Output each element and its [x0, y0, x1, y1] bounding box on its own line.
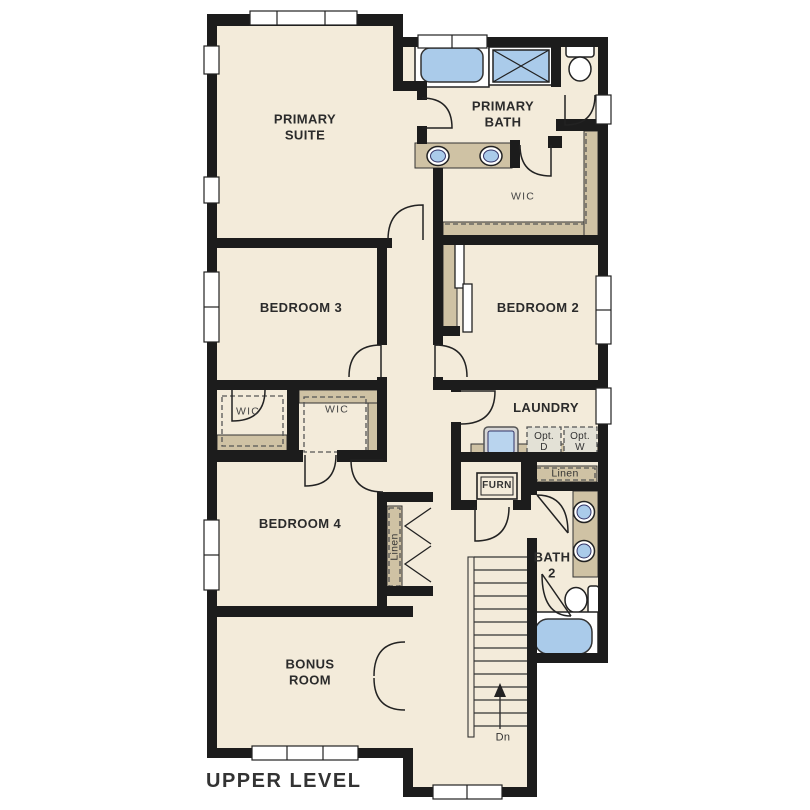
room-label-line: BATH	[534, 549, 571, 564]
wall-segment	[527, 653, 537, 797]
wall-segment	[598, 37, 608, 663]
wall-segment	[287, 390, 299, 452]
wall-segment	[433, 326, 460, 336]
window	[596, 388, 611, 424]
toilet-bowl	[569, 57, 591, 81]
label-line: Opt.	[534, 431, 554, 442]
label-linen-hall: Linen	[389, 533, 402, 560]
room-label-wic-bedroom4: WIC	[325, 404, 349, 417]
wall-segment	[433, 168, 443, 345]
window	[204, 177, 219, 203]
room-label-primary-suite: PRIMARYSUITE	[274, 111, 336, 142]
room-label-laundry: LAUNDRY	[513, 400, 579, 416]
floor-plan-drawing	[0, 0, 810, 810]
wall-segment	[527, 462, 537, 495]
wic3-shelf	[217, 435, 287, 452]
wall-segment	[527, 653, 608, 663]
room-label-line: PRIMARY	[472, 98, 534, 113]
primary-tub	[421, 48, 483, 82]
label-line: Opt.	[570, 431, 590, 442]
wall-segment	[207, 380, 387, 390]
room-label-line: ROOM	[289, 672, 331, 687]
sink-basin	[484, 150, 499, 162]
room-label-bonus: BONUSROOM	[286, 656, 335, 687]
room-label-line: 2	[548, 565, 556, 580]
floor	[408, 611, 532, 792]
sink-basin	[577, 544, 591, 558]
wall-segment	[537, 482, 598, 491]
sink-basin	[577, 505, 591, 519]
window	[252, 746, 358, 760]
wall-segment	[513, 500, 531, 510]
bath2-tub	[535, 619, 592, 654]
wall-segment	[510, 140, 520, 168]
plan-title: UPPER LEVEL	[206, 770, 361, 793]
wall-segment	[207, 450, 303, 462]
room-label-primary-bath: PRIMARYBATH	[472, 98, 534, 129]
wall-segment	[433, 235, 598, 245]
wall-segment	[548, 136, 562, 148]
wall-segment	[451, 500, 477, 510]
label-optional-dryer: Opt.D	[534, 431, 554, 453]
label-stairs-down: Dn	[496, 731, 511, 744]
room-label-bedroom4: BEDROOM 4	[259, 516, 341, 532]
wall-segment	[377, 492, 433, 502]
room-label-bath2: BATH2	[534, 549, 571, 580]
sink-basin	[431, 150, 446, 162]
label-line: W	[575, 442, 585, 453]
wall-segment	[393, 14, 403, 88]
wall-segment	[451, 452, 598, 462]
room-label-bedroom3: BEDROOM 3	[260, 300, 342, 316]
closet-bypass-door	[463, 284, 472, 332]
wall-segment	[207, 238, 392, 248]
room-label-line: SUITE	[285, 127, 325, 142]
room-label-primary-wic: WIC	[511, 191, 535, 204]
wall-segment	[451, 380, 461, 392]
wall-segment	[551, 37, 561, 87]
laundry-sink-basin	[488, 431, 514, 453]
floor-plan: PRIMARYSUITE PRIMARYBATH WIC BEDROOM 3 B…	[0, 0, 810, 810]
room-label-bedroom2: BEDROOM 2	[497, 300, 579, 316]
wall-segment	[377, 586, 433, 596]
closet-bypass-door	[455, 240, 464, 288]
room-label-line: BATH	[485, 114, 522, 129]
window	[596, 95, 611, 124]
wall-segment	[556, 119, 598, 131]
label-optional-washer: Opt.W	[570, 431, 590, 453]
room-label-wic-bedroom3: WIC	[236, 406, 260, 419]
toilet-tank	[588, 586, 599, 614]
window	[250, 11, 357, 25]
toilet-bowl	[565, 588, 587, 613]
window	[204, 46, 219, 74]
wall-segment	[377, 248, 387, 345]
wall-segment	[207, 606, 413, 617]
room-label-line: PRIMARY	[274, 111, 336, 126]
label-linen-bath2: Linen	[551, 468, 578, 481]
room-label-line: BONUS	[286, 656, 335, 671]
label-furnace: FURN	[482, 480, 512, 492]
label-line: D	[540, 442, 547, 453]
